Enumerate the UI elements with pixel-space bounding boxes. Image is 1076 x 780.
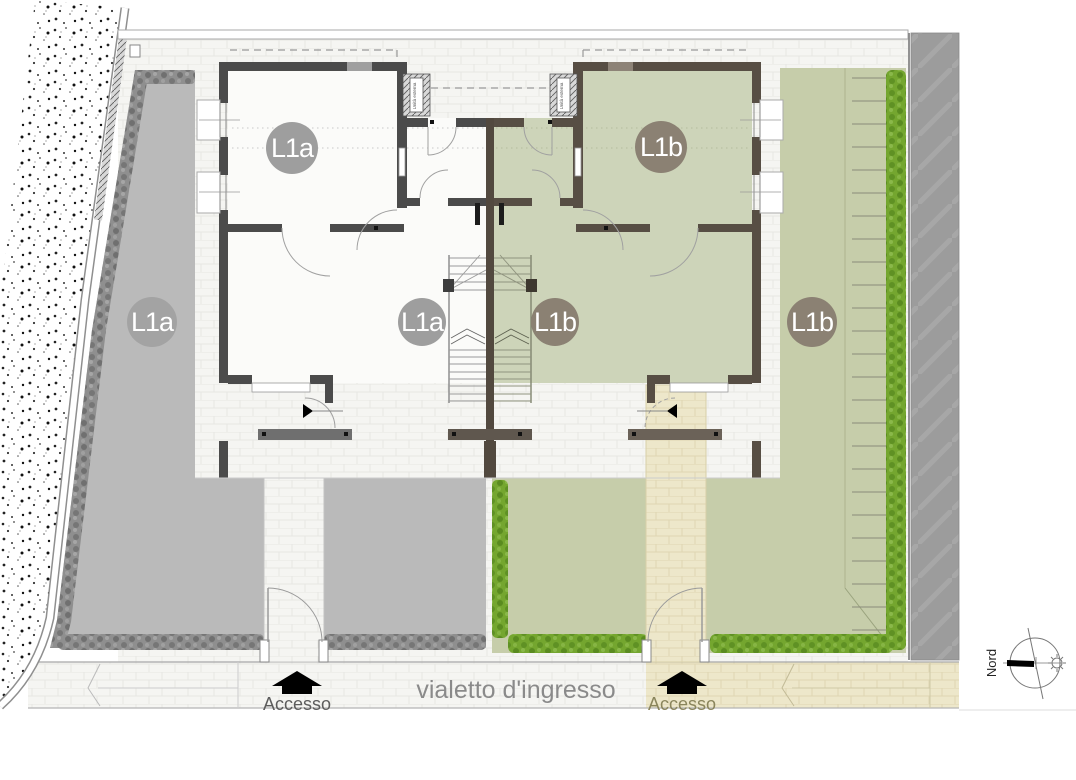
ac-unit-label-b: Unità esterna xyxy=(559,82,564,109)
fixture xyxy=(399,148,405,176)
hedge-gray-bottom-right xyxy=(324,634,486,650)
gate-post xyxy=(260,640,269,662)
gate-post xyxy=(319,640,328,662)
hedge-green-left xyxy=(492,480,508,638)
badge-garden-b-label: L1b xyxy=(791,307,833,337)
walkway-label: vialetto d'ingresso xyxy=(416,676,615,704)
gate-post xyxy=(642,640,651,662)
entry-step-a xyxy=(252,383,310,392)
access-path-b xyxy=(646,385,706,662)
road-strip xyxy=(909,33,959,660)
compass-north-label: Nord xyxy=(984,649,999,677)
entry-step-b xyxy=(670,383,728,392)
hedge-green-right xyxy=(886,70,906,650)
stair-post xyxy=(443,279,454,292)
gate-post xyxy=(700,640,709,662)
site-plan-page: Unità esterna Unità esterna xyxy=(0,0,1076,780)
access-a-label: Accesso xyxy=(263,694,331,714)
ac-unit-box-b: Unità esterna xyxy=(550,74,577,116)
door-leaf xyxy=(475,203,480,225)
party-wall xyxy=(486,118,494,442)
boundary-post xyxy=(130,45,140,57)
window-top-b xyxy=(608,62,633,71)
fixture xyxy=(575,148,581,176)
compass-needle xyxy=(1007,660,1034,667)
badge-living-a-label: L1a xyxy=(401,307,445,337)
north-boundary-wall xyxy=(118,30,908,39)
stair-post xyxy=(526,279,537,292)
hedge-green-bottom-right xyxy=(710,634,893,653)
porch-parapets xyxy=(258,429,722,440)
badge-garden-a-label: L1a xyxy=(131,307,175,337)
north-compass: Nord xyxy=(984,628,1066,699)
badge-living-b-label: L1b xyxy=(534,307,576,337)
access-b-label: Accesso xyxy=(648,694,716,714)
access-path-a xyxy=(264,478,324,662)
badge-bedroom-b-label: L1b xyxy=(640,132,682,162)
party-wall-pillar xyxy=(484,441,496,478)
ac-unit-label-a: Unità esterna xyxy=(412,82,417,109)
window-top-a xyxy=(347,62,372,71)
floor-plan-drawing: Unità esterna Unità esterna xyxy=(0,0,1076,780)
door-leaf xyxy=(499,203,504,225)
hedge-green-bottom-left xyxy=(508,634,648,653)
badge-bedroom-a-label: L1a xyxy=(271,133,315,163)
ac-unit-box-a: Unità esterna xyxy=(403,74,430,116)
hedge-gray-bottom-left xyxy=(58,634,264,650)
